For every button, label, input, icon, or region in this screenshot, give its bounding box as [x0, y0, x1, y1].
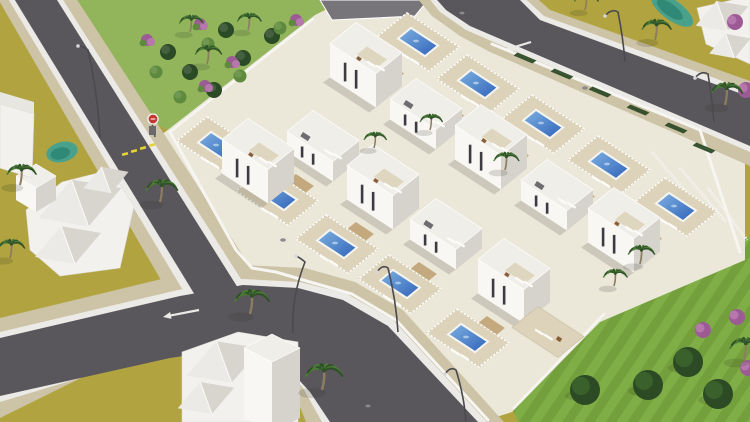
pool-glint — [538, 122, 544, 125]
palm-shadow — [636, 39, 658, 47]
palm-shadow — [599, 286, 617, 292]
window-slit — [236, 159, 239, 178]
bush-dark — [160, 44, 176, 60]
palm-shadow — [570, 10, 588, 16]
pool-glint — [213, 144, 219, 147]
palm-shadow — [360, 148, 377, 154]
window-slit — [435, 242, 438, 253]
bush-light — [150, 66, 163, 79]
palm-shadow — [489, 170, 508, 177]
aerial-development-render — [0, 0, 750, 422]
window-slit — [301, 147, 304, 158]
render-viewport — [0, 0, 750, 422]
window-slit — [404, 115, 407, 126]
pool-glint — [473, 82, 479, 85]
lamp-head — [76, 44, 80, 48]
window-slit — [424, 235, 427, 246]
sign-plate — [149, 126, 156, 135]
window-slit — [312, 154, 315, 165]
lamp-head — [443, 372, 447, 376]
window-slit — [372, 192, 375, 211]
window-slit — [602, 228, 605, 247]
shrub-purple — [695, 322, 711, 338]
palm-shadow — [623, 263, 643, 270]
window-slit — [469, 145, 472, 164]
window-slit — [503, 286, 506, 305]
window-slit — [546, 203, 549, 214]
pool-glint — [332, 242, 338, 245]
manhole — [582, 87, 587, 90]
bush-light — [234, 70, 247, 83]
pool-glint — [463, 336, 469, 339]
palm-shadow — [175, 32, 193, 38]
lamp-head — [375, 270, 379, 274]
manhole — [365, 405, 370, 408]
pool-glint — [413, 40, 419, 43]
pool-glint — [604, 163, 610, 166]
window-slit — [247, 166, 250, 185]
bush-dark — [218, 22, 234, 38]
lamp-head — [294, 254, 298, 258]
manhole — [459, 12, 464, 15]
palm-shadow — [1, 184, 23, 192]
palm-shadow — [190, 63, 210, 70]
window-slit — [361, 185, 364, 204]
lamp-head — [603, 14, 607, 18]
bush-light — [174, 91, 187, 104]
bush-light — [274, 22, 287, 35]
lamp-head — [693, 76, 697, 80]
stop-bar — [151, 118, 156, 119]
window-slit — [492, 279, 495, 298]
pool-glint — [395, 282, 401, 285]
window-slit — [535, 196, 538, 207]
manhole — [280, 239, 285, 242]
window-slit — [480, 152, 483, 171]
window-slit — [355, 70, 358, 89]
window-slit — [415, 122, 418, 133]
palm-shadow — [416, 130, 433, 136]
window-slit — [344, 63, 347, 82]
window-slit — [613, 235, 616, 254]
shrub-purple — [729, 309, 745, 325]
pool-glint — [671, 205, 677, 208]
shrub-purple — [727, 14, 743, 30]
palm-shadow — [233, 30, 251, 36]
